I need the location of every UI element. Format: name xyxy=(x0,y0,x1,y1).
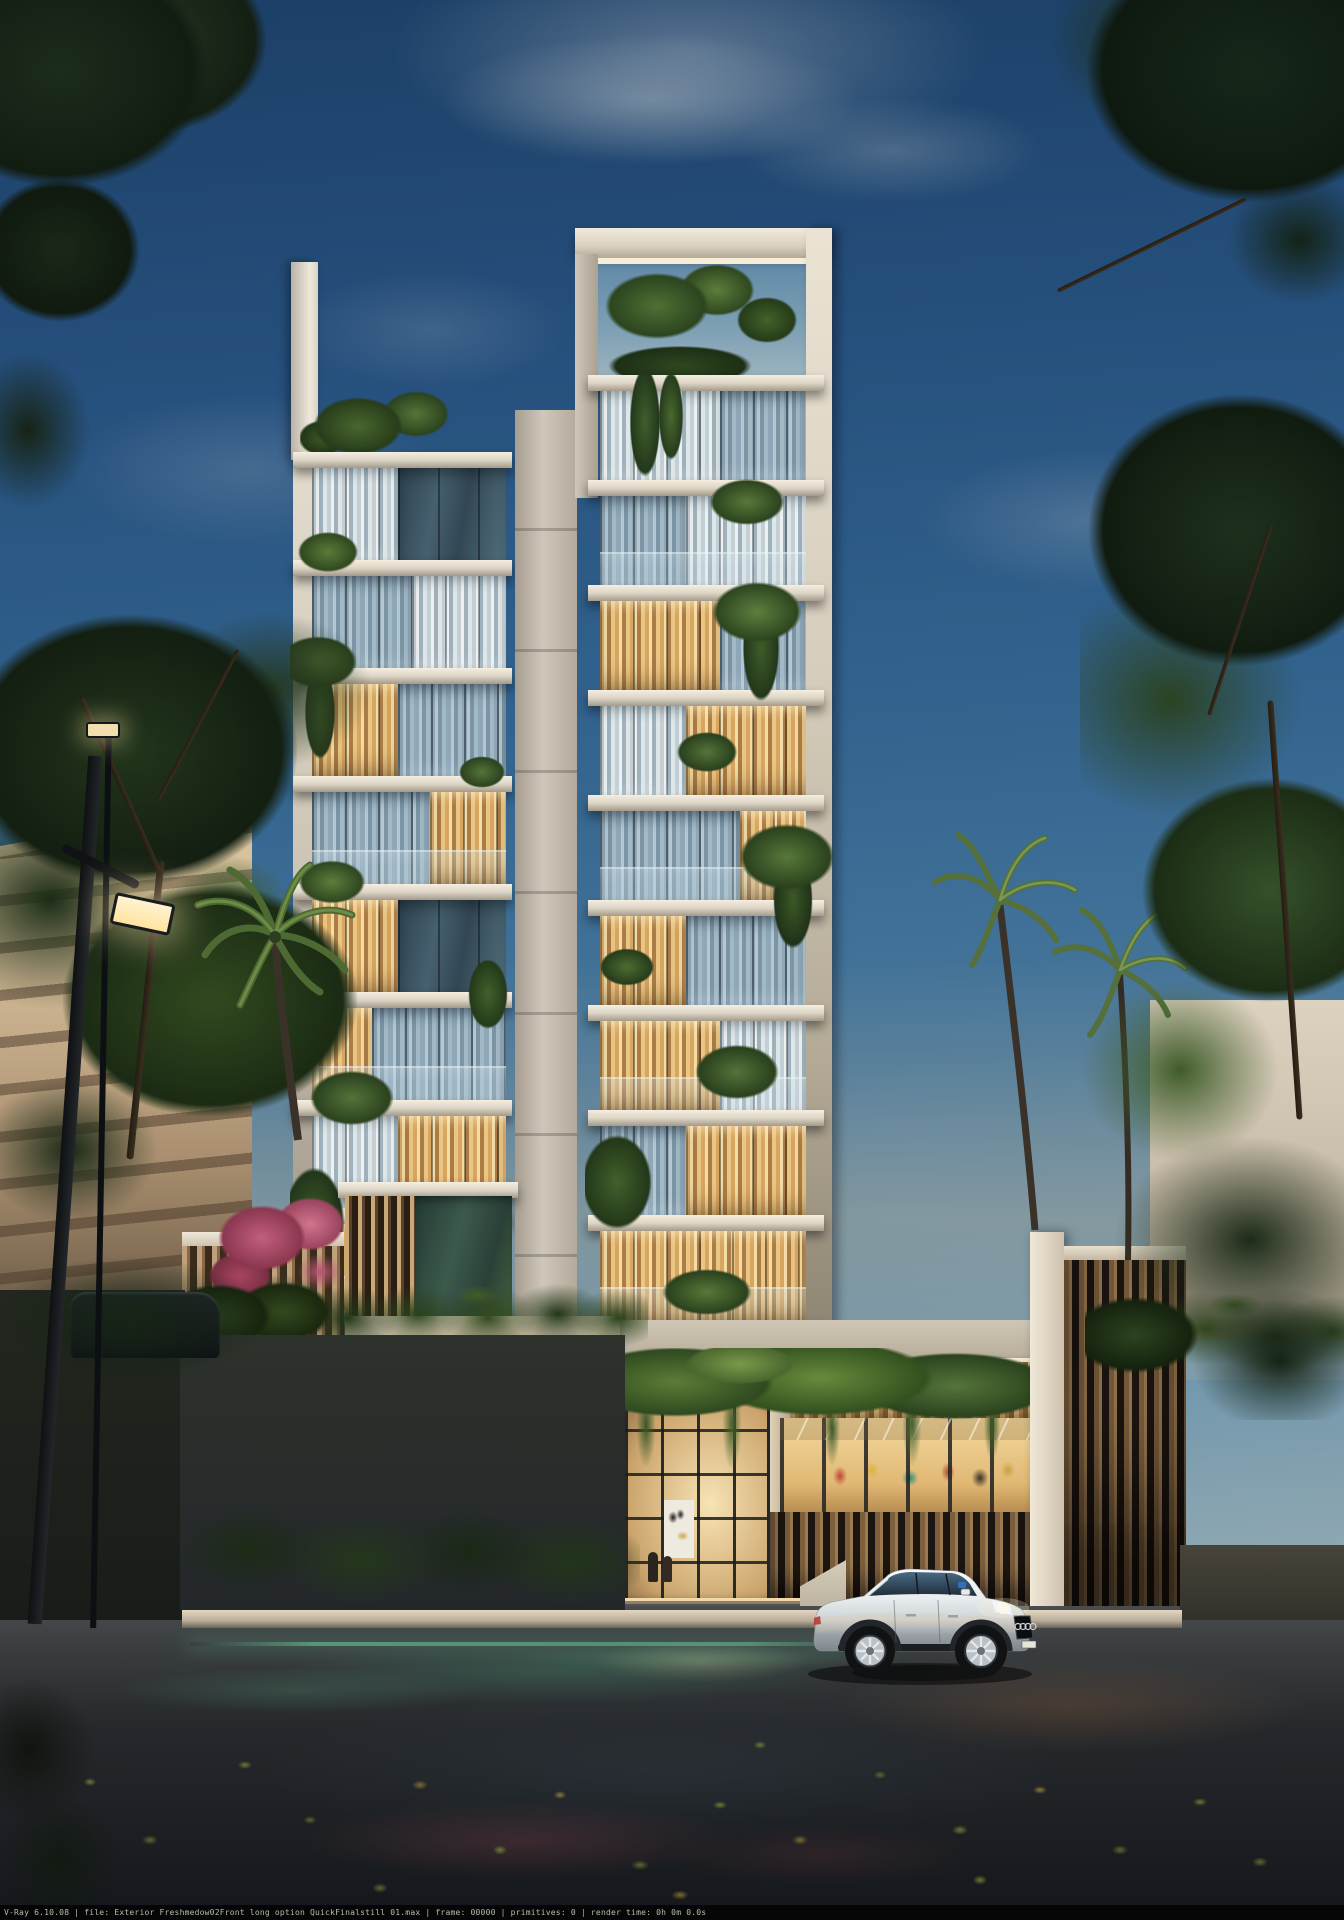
balcony-plants-right xyxy=(585,360,835,1350)
dashboard-screen xyxy=(958,1582,966,1588)
rear-wheel xyxy=(845,1626,895,1676)
door-handle xyxy=(906,1614,916,1617)
door-handle xyxy=(948,1615,958,1618)
person-silhouette xyxy=(648,1552,658,1582)
white-estate-car xyxy=(798,1542,1043,1692)
fallen-leaves xyxy=(0,1690,1344,1910)
front-wheel xyxy=(955,1625,1007,1677)
taillight xyxy=(814,1616,821,1625)
foreground-leaf-silhouette xyxy=(0,1630,140,1920)
palm-trunk xyxy=(1000,905,1035,1230)
headlight-core xyxy=(997,1602,1009,1614)
lobby-artwork xyxy=(664,1500,694,1558)
foliage-top-left xyxy=(0,0,290,560)
crown-top-slab xyxy=(575,228,832,258)
street-lamp-head-far xyxy=(86,722,120,738)
forecourt-bushes xyxy=(180,1480,640,1620)
license-plate xyxy=(1022,1641,1036,1648)
hanging-canopy-plants xyxy=(580,1348,1050,1468)
vray-render-stamp: V-Ray 6.10.08 | file: Exterior Freshmedo… xyxy=(0,1905,1344,1920)
palm-crown xyxy=(269,931,281,943)
foliage-top-right xyxy=(1050,0,1344,420)
architectural-rendering: V-Ray 6.10.08 | file: Exterior Freshmedo… xyxy=(0,0,1344,1920)
render-stamp-text: V-Ray 6.10.08 | file: Exterior Freshmedo… xyxy=(0,1908,706,1917)
foliage-right xyxy=(1080,360,1344,1420)
crown-soffit xyxy=(598,258,806,264)
person-silhouette xyxy=(663,1556,672,1582)
right-sidewalk xyxy=(1180,1545,1344,1620)
side-mirror xyxy=(961,1589,970,1595)
palm-tree-left xyxy=(180,820,380,1160)
